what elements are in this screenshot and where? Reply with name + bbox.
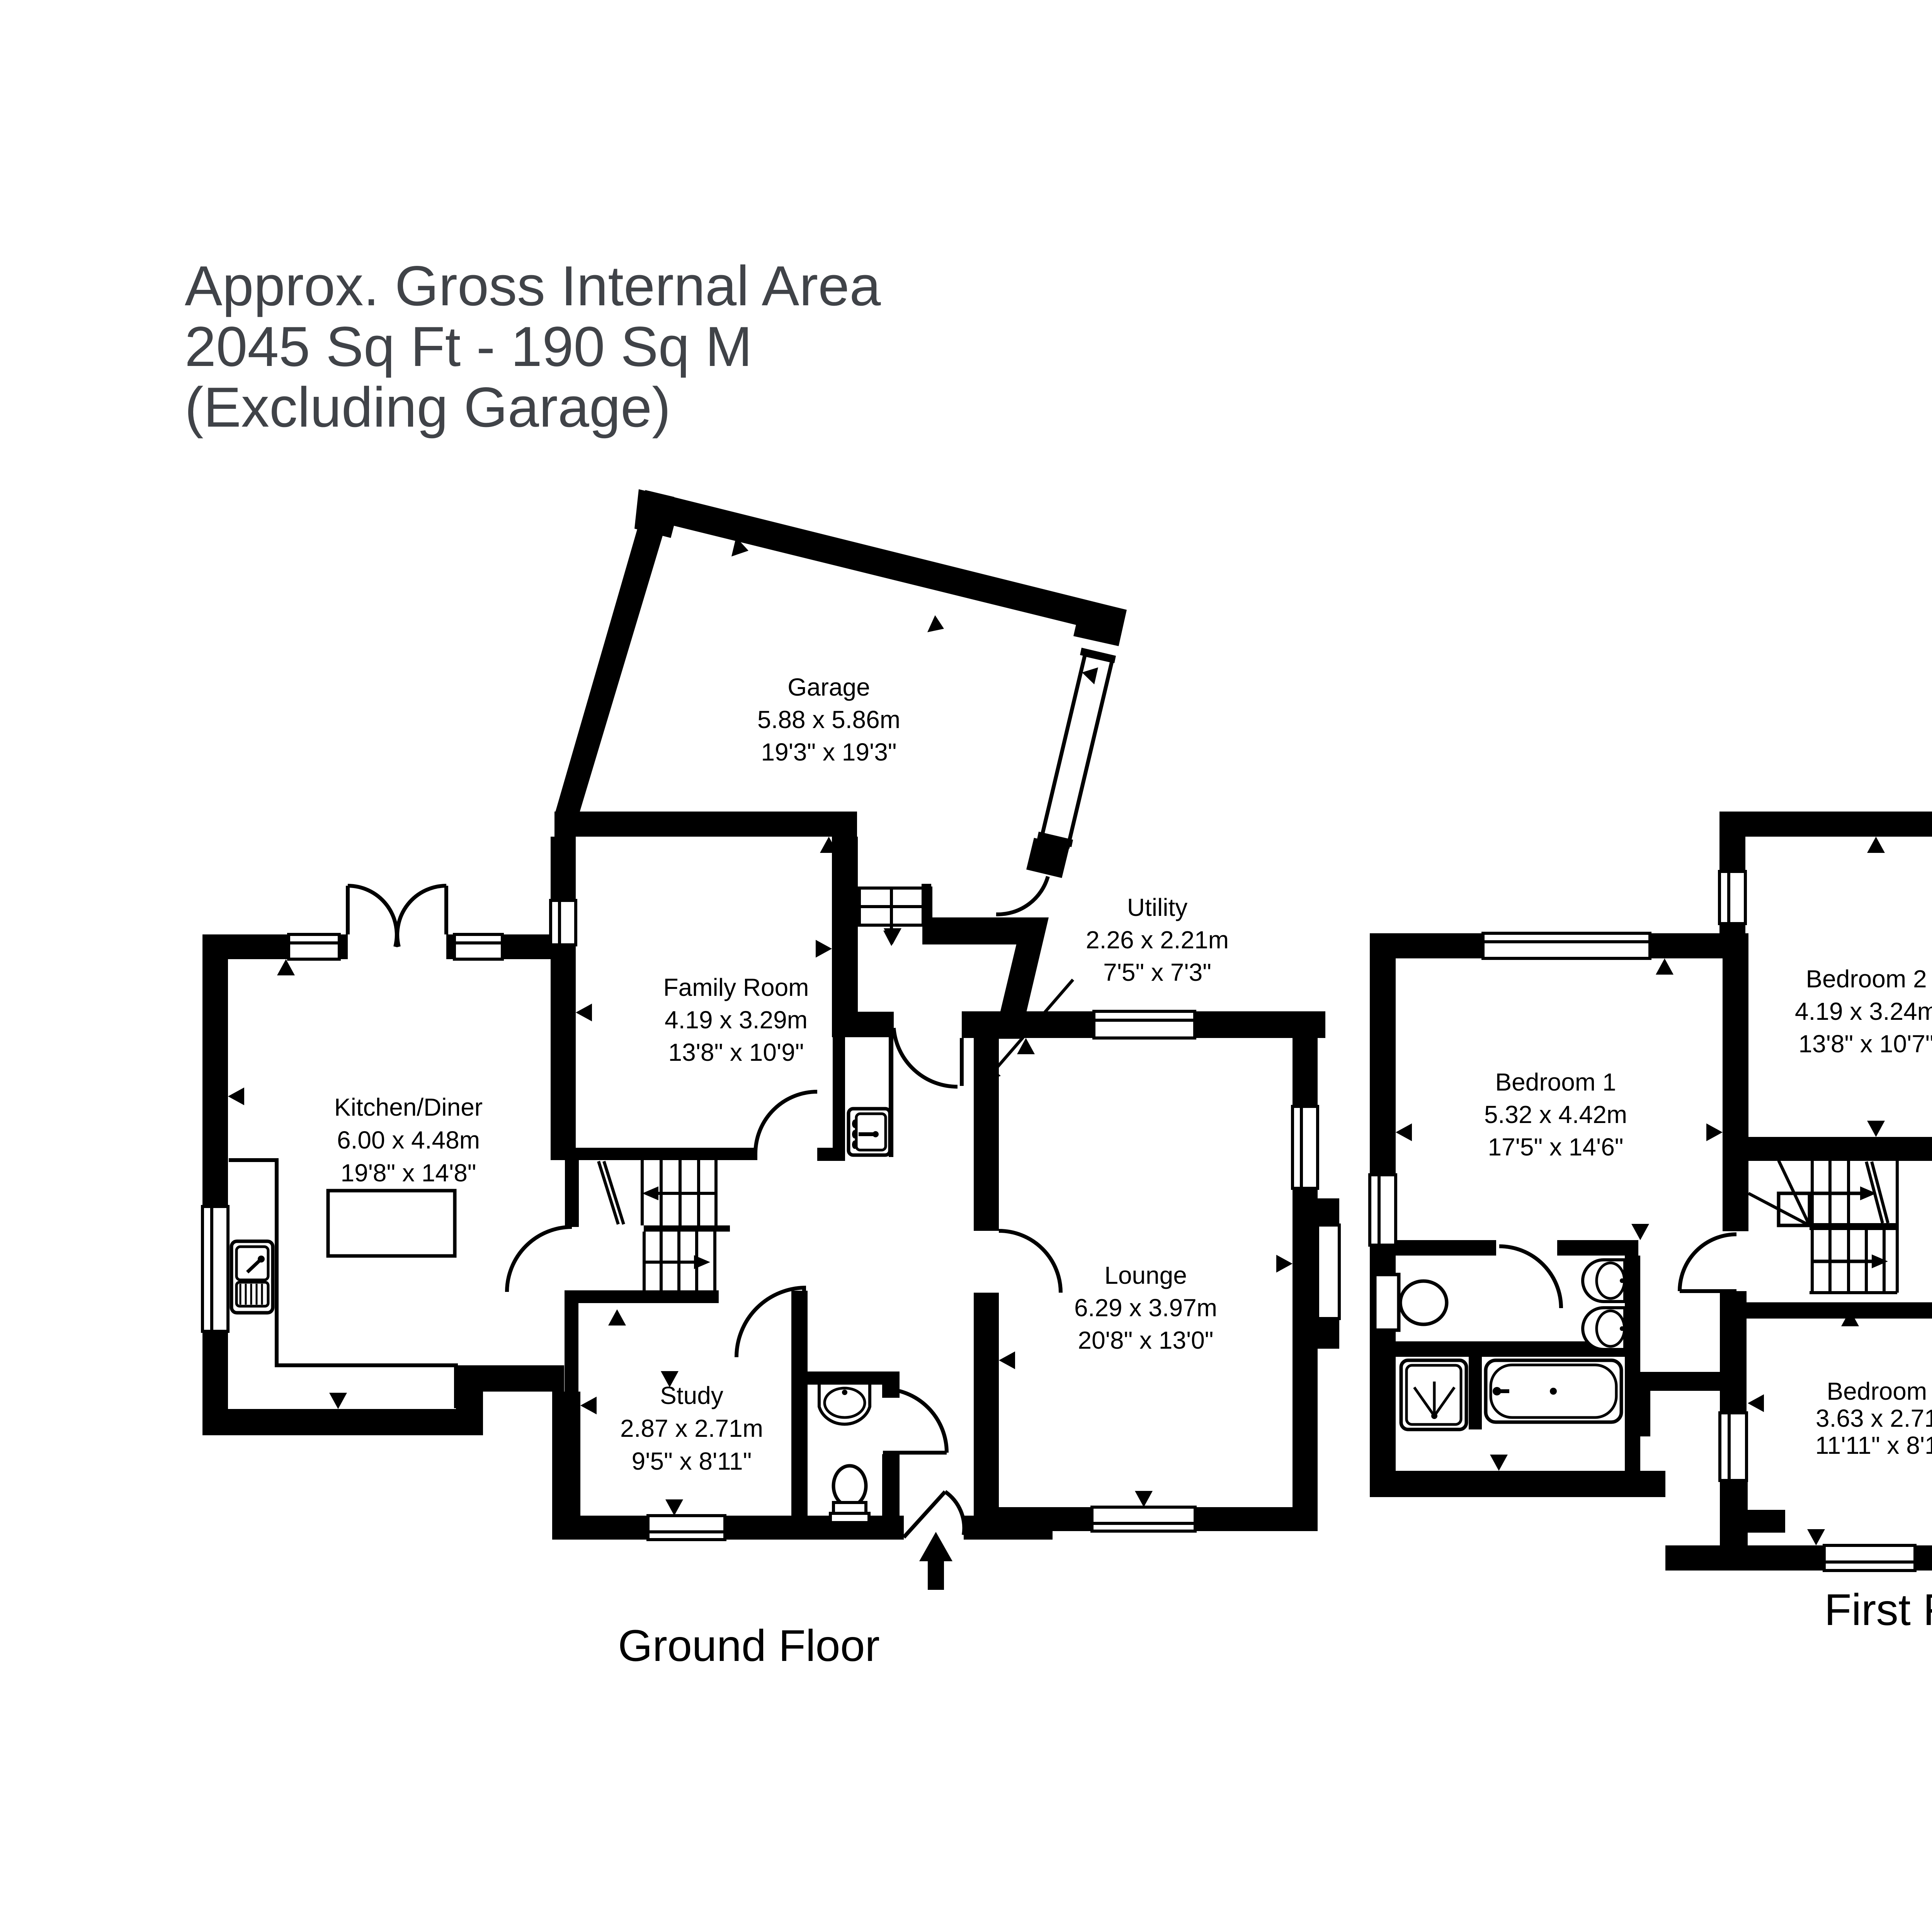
svg-text:Utility: Utility bbox=[1127, 893, 1187, 921]
svg-text:2.26 x 2.21m: 2.26 x 2.21m bbox=[1086, 926, 1229, 954]
svg-text:5.32 x 4.42m: 5.32 x 4.42m bbox=[1484, 1101, 1627, 1128]
svg-text:19'8" x 14'8": 19'8" x 14'8" bbox=[341, 1159, 476, 1187]
svg-text:7'5" x 7'3": 7'5" x 7'3" bbox=[1103, 958, 1211, 986]
svg-text:6.29 x 3.97m: 6.29 x 3.97m bbox=[1074, 1294, 1217, 1322]
svg-text:5.88 x 5.86m: 5.88 x 5.86m bbox=[757, 706, 900, 733]
svg-text:13'8" x 10'7": 13'8" x 10'7" bbox=[1799, 1030, 1932, 1058]
svg-text:11'11" x 8'11": 11'11" x 8'11" bbox=[1815, 1431, 1932, 1459]
svg-text:Garage: Garage bbox=[787, 673, 870, 701]
svg-text:Kitchen/Diner: Kitchen/Diner bbox=[334, 1093, 483, 1121]
svg-text:2.87 x 2.71m: 2.87 x 2.71m bbox=[620, 1414, 763, 1442]
svg-text:6.00 x 4.48m: 6.00 x 4.48m bbox=[337, 1126, 480, 1154]
svg-text:9'5" x 8'11": 9'5" x 8'11" bbox=[632, 1447, 752, 1475]
svg-text:Bedroom 1: Bedroom 1 bbox=[1495, 1068, 1616, 1096]
svg-text:2045 Sq Ft - 190 Sq M: 2045 Sq Ft - 190 Sq M bbox=[185, 315, 752, 378]
svg-text:(Excluding Garage): (Excluding Garage) bbox=[185, 376, 671, 439]
svg-text:Family Room: Family Room bbox=[663, 973, 809, 1001]
svg-text:Lounge: Lounge bbox=[1104, 1261, 1187, 1289]
svg-text:First Floor: First Floor bbox=[1824, 1585, 1932, 1635]
svg-text:Bedroom 2: Bedroom 2 bbox=[1806, 965, 1927, 993]
svg-text:20'8" x 13'0": 20'8" x 13'0" bbox=[1078, 1326, 1214, 1354]
svg-text:17'5" x 14'6": 17'5" x 14'6" bbox=[1488, 1133, 1624, 1161]
svg-text:4.19 x 3.24m: 4.19 x 3.24m bbox=[1795, 997, 1932, 1025]
svg-text:3.63 x 2.71m: 3.63 x 2.71m bbox=[1816, 1404, 1932, 1432]
svg-text:4.19 x 3.29m: 4.19 x 3.29m bbox=[665, 1006, 808, 1034]
svg-text:19'3" x 19'3": 19'3" x 19'3" bbox=[761, 738, 897, 766]
svg-text:13'8" x 10'9": 13'8" x 10'9" bbox=[668, 1038, 804, 1066]
svg-text:Approx. Gross Internal Area: Approx. Gross Internal Area bbox=[185, 254, 881, 317]
svg-text:Bedroom 5: Bedroom 5 bbox=[1827, 1377, 1932, 1405]
svg-text:Ground Floor: Ground Floor bbox=[618, 1621, 880, 1671]
